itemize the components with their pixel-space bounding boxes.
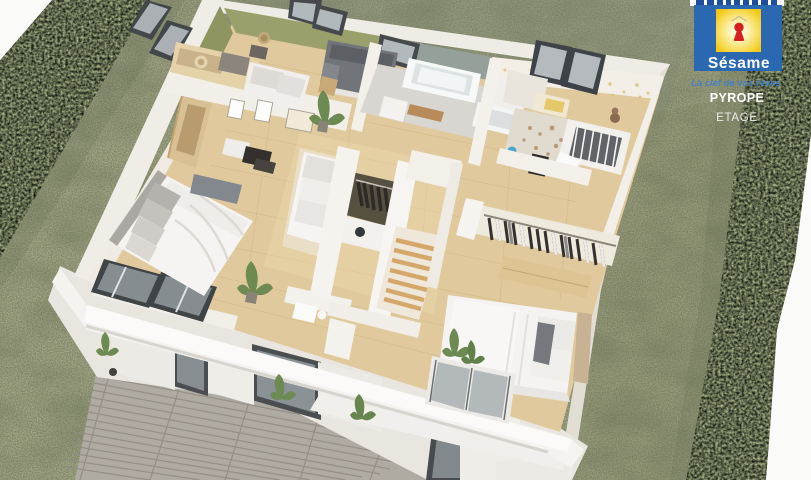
- svg-text:ETAGE: ETAGE: [716, 112, 758, 124]
- svg-text:PYROPE: PYROPE: [710, 91, 765, 105]
- svg-text:La clef de vos rêves: La clef de vos rêves: [691, 78, 781, 88]
- svg-text:Sésame: Sésame: [708, 55, 770, 72]
